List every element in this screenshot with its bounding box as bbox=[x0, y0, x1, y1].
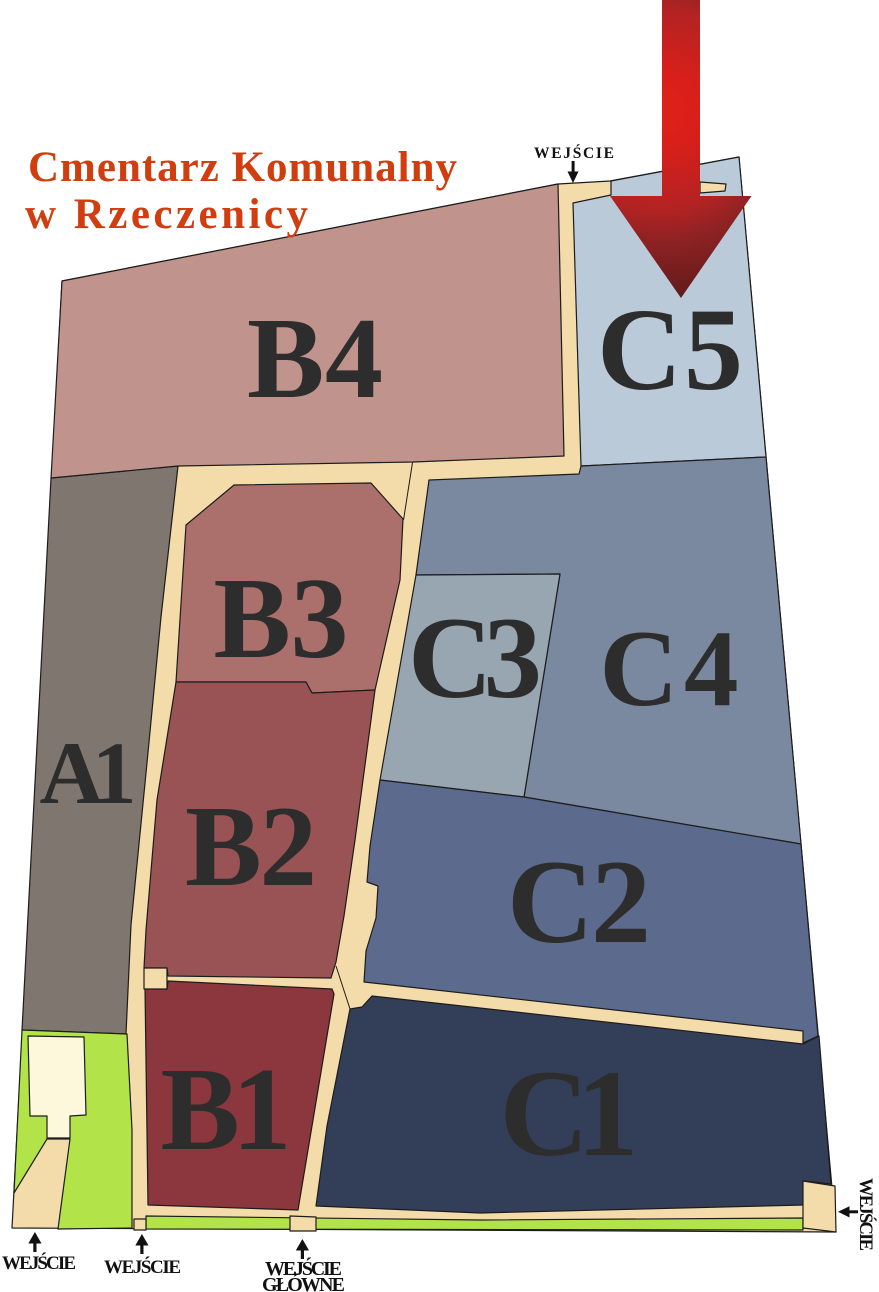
svg-text:w Rzeczenicy: w Rzeczenicy bbox=[25, 191, 309, 238]
svg-text:C3: C3 bbox=[408, 594, 542, 723]
svg-text:C4: C4 bbox=[600, 608, 739, 729]
svg-text:WEJŚCIE: WEJŚCIE bbox=[855, 1178, 877, 1251]
svg-text:WEJŚCIE: WEJŚCIE bbox=[2, 1252, 76, 1274]
svg-text:B3: B3 bbox=[214, 555, 349, 683]
svg-text:B1: B1 bbox=[161, 1043, 292, 1175]
svg-text:B4: B4 bbox=[247, 295, 383, 423]
svg-text:WEJŚCIE: WEJŚCIE bbox=[104, 1256, 181, 1278]
svg-text:C1: C1 bbox=[500, 1045, 639, 1182]
svg-text:GŁÓWNE: GŁÓWNE bbox=[262, 1272, 345, 1292]
svg-text:Cmentarz Komunalny: Cmentarz Komunalny bbox=[28, 144, 458, 191]
svg-text:B2: B2 bbox=[185, 783, 317, 910]
svg-text:C5: C5 bbox=[597, 284, 743, 415]
svg-text:C2: C2 bbox=[507, 835, 651, 968]
svg-text:A1: A1 bbox=[40, 725, 137, 823]
svg-text:WEJŚCIE: WEJŚCIE bbox=[534, 145, 614, 162]
